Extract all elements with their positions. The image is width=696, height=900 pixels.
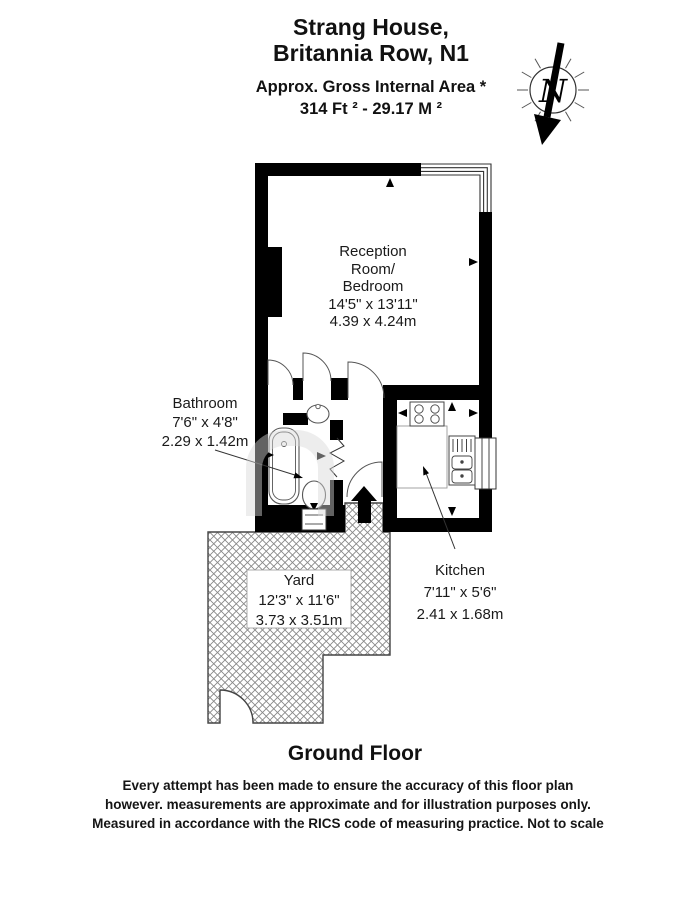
reception-name-line1: Reception (293, 243, 453, 261)
disclaimer-line2: however. measurements are approximate an… (0, 795, 696, 814)
disclaimer: Every attempt has been made to ensure th… (0, 776, 696, 833)
disclaimer-line1: Every attempt has been made to ensure th… (0, 776, 696, 795)
reception-name-line2: Room/ (293, 261, 453, 279)
reception-doors (268, 353, 384, 398)
yard-name: Yard (246, 571, 352, 591)
kitchen-dims-metric: 2.41 x 1.68m (380, 604, 540, 626)
reception-room-label: Reception Room/ Bedroom 14'5" x 13'11" 4… (293, 243, 453, 331)
kitchen-dims-imperial: 7'11" x 5'6" (380, 582, 540, 604)
bathroom-dims-imperial: 7'6" x 4'8" (130, 413, 280, 432)
reception-dims-metric: 4.39 x 4.24m (293, 313, 453, 331)
bathroom-label: Bathroom 7'6" x 4'8" 2.29 x 1.42m (130, 394, 280, 451)
hob (410, 402, 444, 426)
kitchen-counter (397, 426, 447, 488)
yard-dims-imperial: 12'3" x 11'6" (246, 591, 352, 611)
bathroom-dims-metric: 2.29 x 1.42m (130, 432, 280, 451)
door-arc-main (348, 362, 384, 398)
reception-name-line3: Bedroom (293, 278, 453, 296)
door-arc-left (268, 360, 293, 385)
kitchen-name: Kitchen (380, 560, 540, 582)
bathroom-name: Bathroom (130, 394, 280, 413)
floorplan-page: Strang House, Britannia Row, N1 Approx. … (0, 0, 696, 900)
basin-sink (307, 404, 329, 423)
disclaimer-line3: Measured in accordance with the RICS cod… (0, 814, 696, 833)
floor-title: Ground Floor (0, 742, 696, 766)
kitchen-sink (449, 436, 475, 485)
yard-dims-metric: 3.73 x 3.51m (246, 611, 352, 631)
corner-window (421, 164, 491, 212)
kitchen-window (475, 438, 496, 489)
yard-label: Yard 12'3" x 11'6" 3.73 x 3.51m (246, 571, 352, 631)
kitchen-label: Kitchen 7'11" x 5'6" 2.41 x 1.68m (380, 560, 540, 626)
door-arc-middle (303, 353, 331, 381)
reception-dims-imperial: 14'5" x 13'11" (293, 296, 453, 314)
